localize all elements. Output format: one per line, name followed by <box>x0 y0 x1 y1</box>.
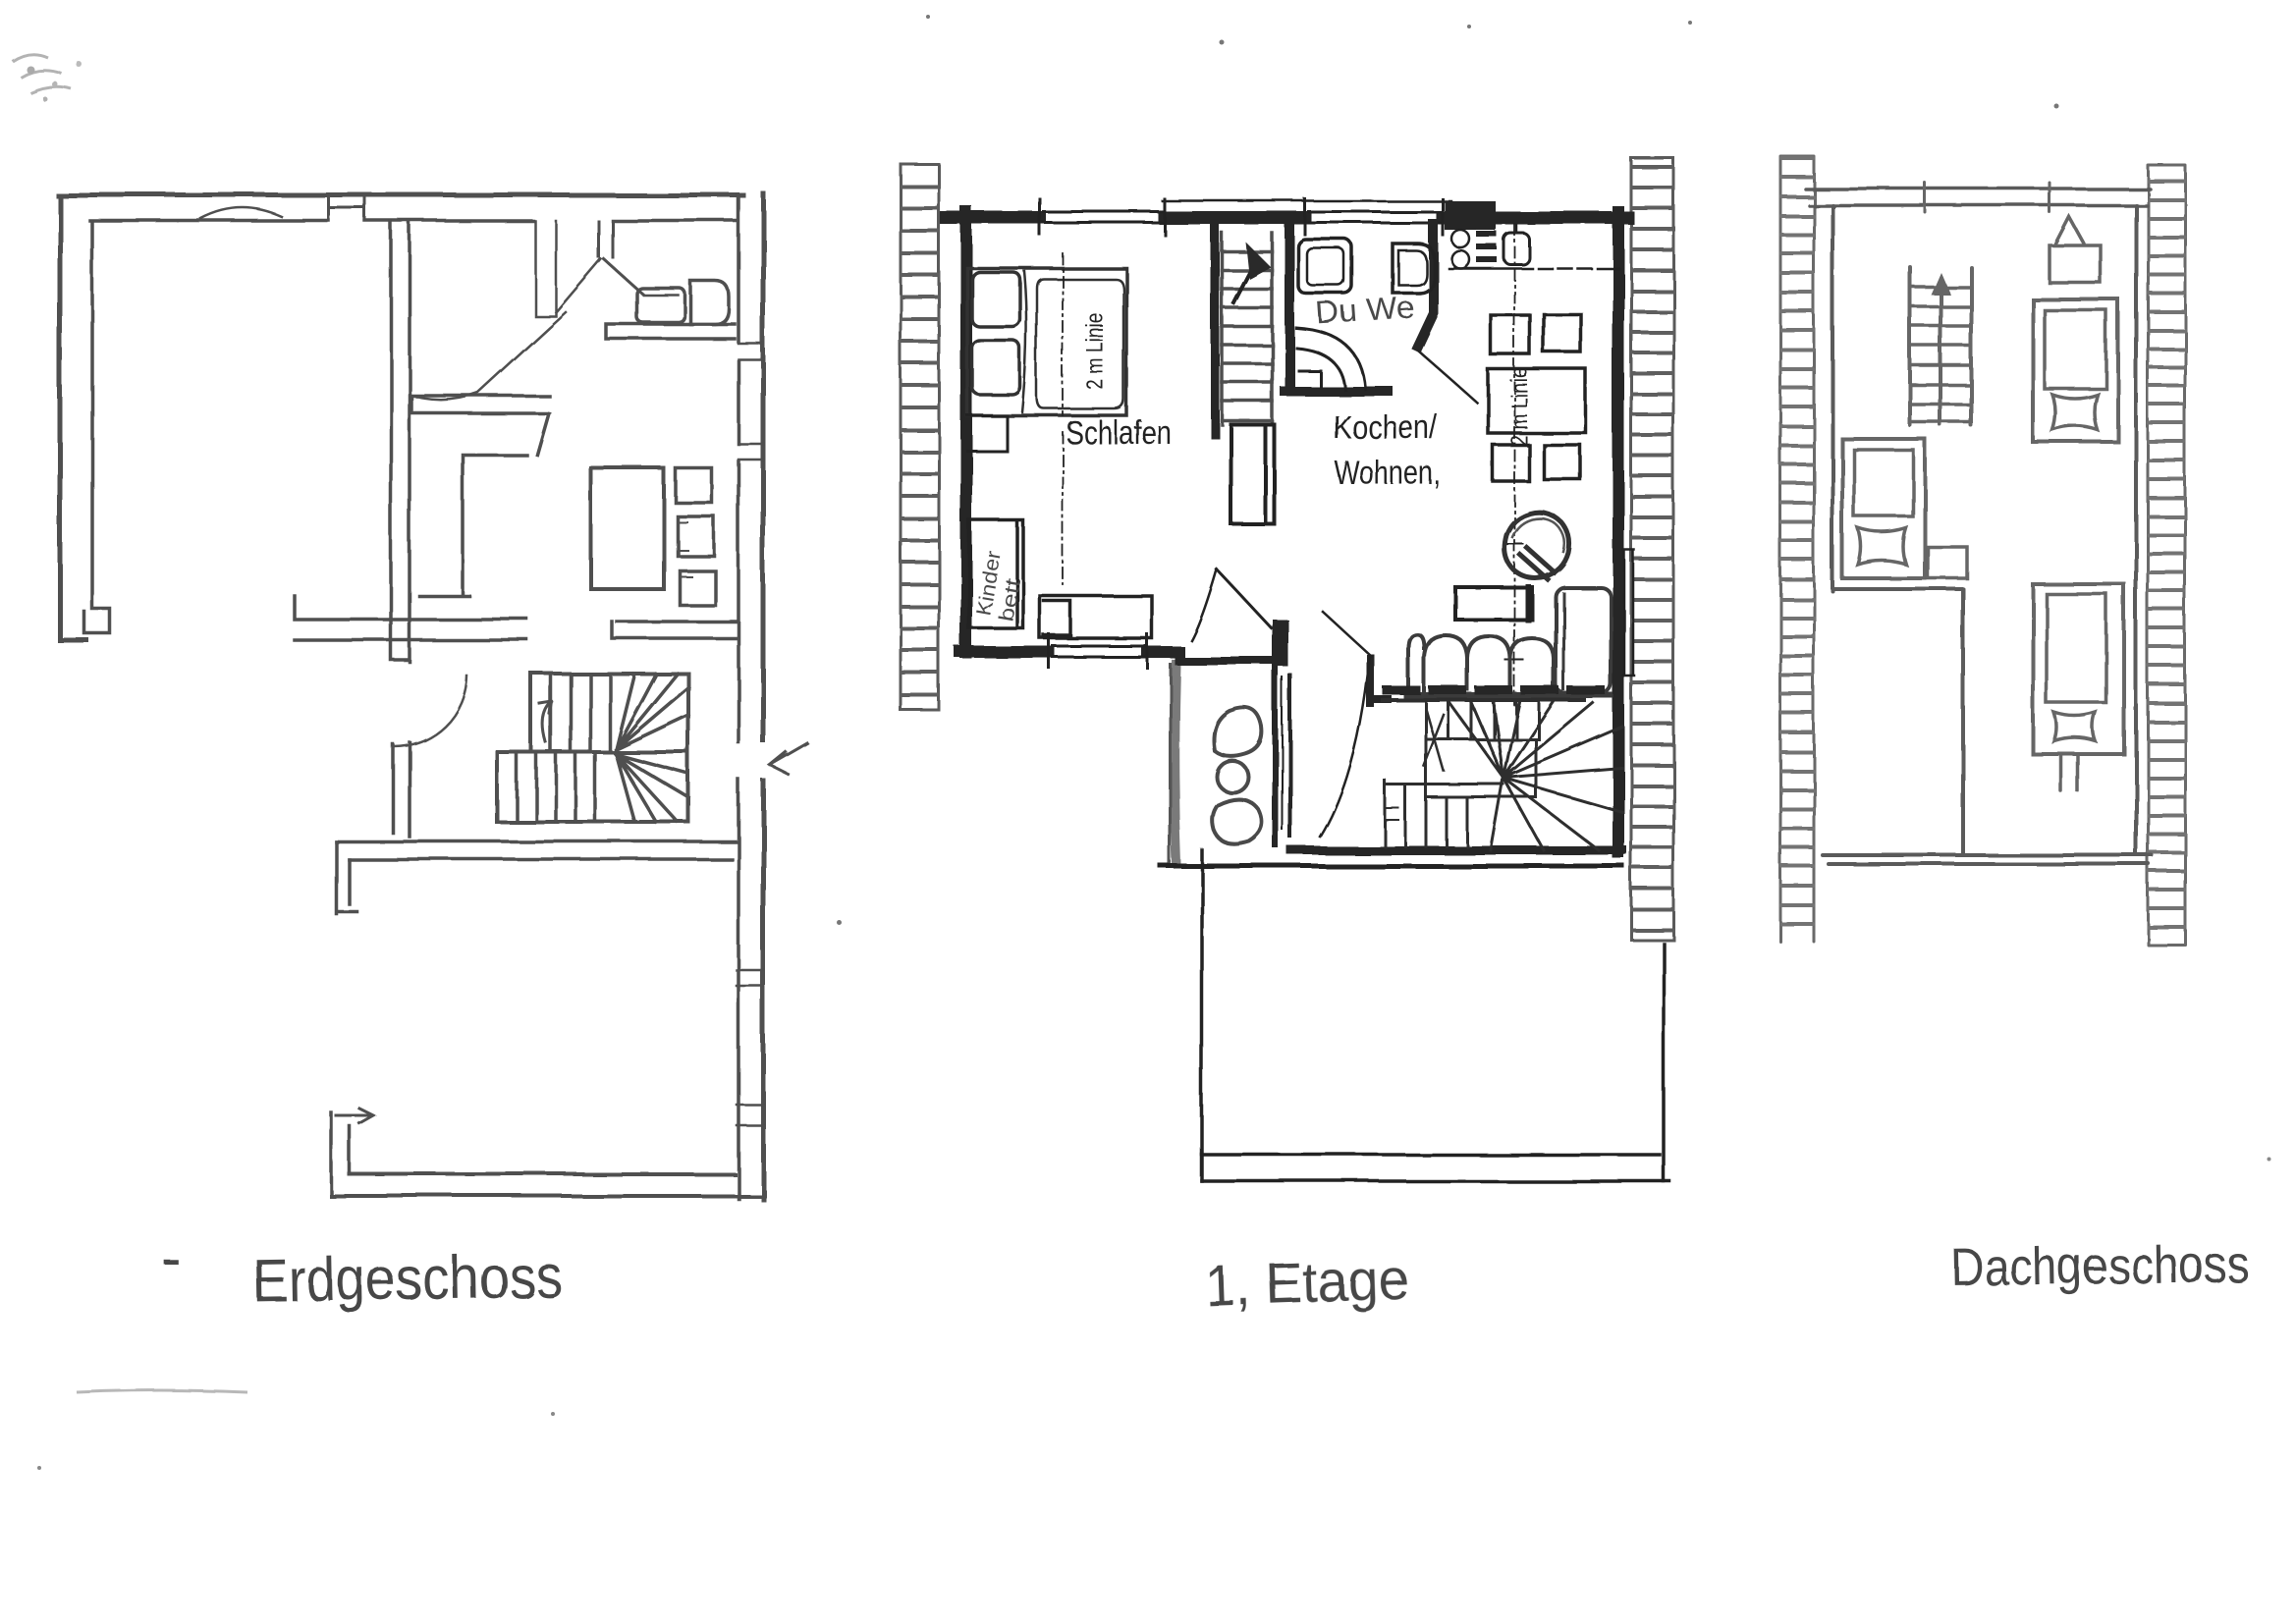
svg-text:Du We: Du We <box>1315 289 1415 331</box>
svg-text:-: - <box>162 1225 182 1291</box>
svg-text:Kochen/: Kochen/ <box>1334 409 1438 447</box>
svg-text:1, Etage: 1, Etage <box>1204 1248 1410 1319</box>
svg-text:Wohnen,: Wohnen, <box>1335 455 1441 492</box>
svg-text:Schlafen: Schlafen <box>1066 414 1172 452</box>
svg-text:2 m Linie: 2 m Linie <box>1082 313 1109 390</box>
svg-text:2 m Linie: 2 m Linie <box>1506 367 1533 446</box>
svg-text:Erdgeschoss: Erdgeschoss <box>252 1243 563 1316</box>
svg-text:Dachgeschoss: Dachgeschoss <box>1951 1234 2249 1298</box>
